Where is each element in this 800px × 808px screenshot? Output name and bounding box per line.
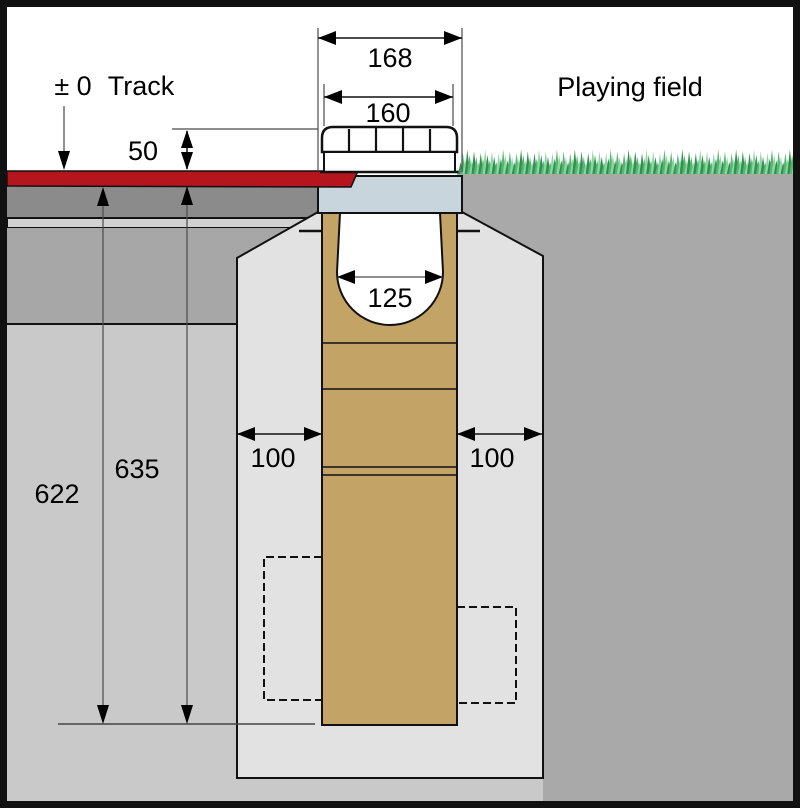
subsoil-left	[7, 324, 237, 801]
dim-100-right-label: 100	[469, 443, 514, 473]
grate-cover	[322, 127, 457, 152]
dim-168-label: 168	[367, 43, 412, 73]
dim-50-label: 50	[128, 136, 158, 166]
subsoil-below-concrete	[237, 778, 543, 801]
track-base-layer-light	[7, 218, 318, 228]
track-surface	[7, 171, 358, 187]
dim-160-label: 160	[365, 98, 410, 128]
dim-635-label: 635	[114, 454, 159, 484]
label-datum: ± 0	[54, 71, 91, 101]
cross-section-svg: 168 160 50 ± 0 Track Playing field 125	[0, 0, 800, 808]
grate-frame	[324, 152, 455, 172]
track-base-layer-dark	[7, 186, 318, 218]
dim-125-label: 125	[367, 283, 412, 313]
label-playing-field: Playing field	[557, 72, 703, 102]
dim-622-label: 622	[34, 479, 79, 509]
dim-100-left-label: 100	[250, 443, 295, 473]
label-track: Track	[108, 71, 175, 101]
cross-section-diagram: 168 160 50 ± 0 Track Playing field 125	[0, 0, 800, 808]
